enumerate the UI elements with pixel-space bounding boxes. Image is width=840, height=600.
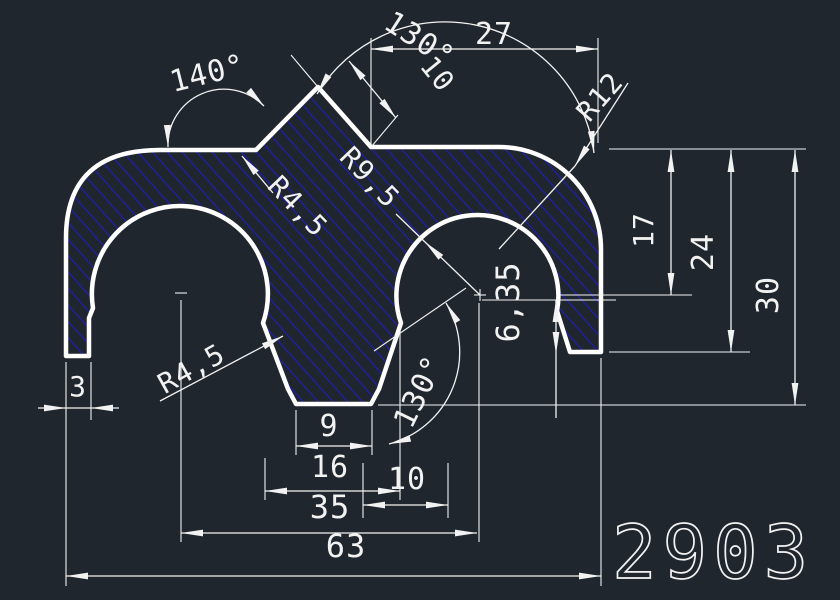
dim-label-10-635: 6,35 [489,261,527,342]
cad-viewport: 140°130°2710R12R9,5R4,51724306,353R4,513… [0,0,840,600]
dim-label-7-17: 17 [627,212,660,248]
part-number-label: 2903 [612,510,814,596]
dim-label-16-10: 10 [388,462,426,497]
dim-label-2-27: 27 [475,17,513,52]
dim-label-18-63: 63 [326,527,367,565]
dim-label-9-30: 30 [751,276,786,314]
drawing-canvas[interactable]: 140°130°2710R12R9,5R4,51724306,353R4,513… [0,0,840,600]
dim-label-15-16: 16 [311,450,349,485]
dim-label-8-24: 24 [686,233,721,271]
dim-label-14-9: 9 [319,409,338,444]
dim-label-17-35: 35 [310,488,351,526]
dim-label-11-3: 3 [69,370,87,403]
